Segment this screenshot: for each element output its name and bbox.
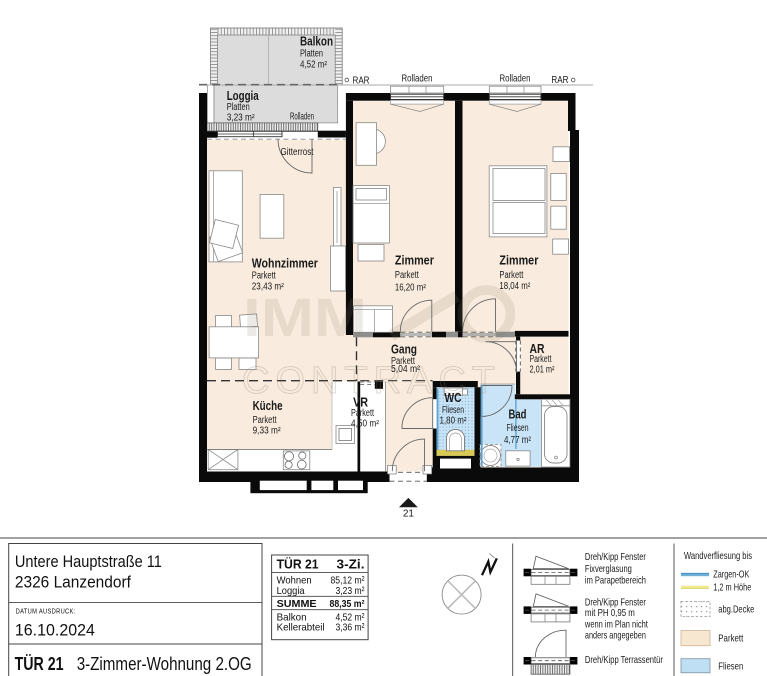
svg-text:Balkon: Balkon xyxy=(300,35,333,49)
svg-text:Parkett: Parkett xyxy=(351,408,374,419)
svg-text:9,33 m²: 9,33 m² xyxy=(253,426,282,437)
svg-text:WC: WC xyxy=(445,391,462,405)
svg-text:abg.Decke: abg.Decke xyxy=(718,603,754,615)
svg-text:Platten: Platten xyxy=(227,102,250,113)
svg-text:Zimmer: Zimmer xyxy=(499,254,538,268)
svg-text:TÜR 21: TÜR 21 xyxy=(277,557,319,572)
svg-text:CONTRACT: CONTRACT xyxy=(242,360,501,402)
svg-text:1,80 m²: 1,80 m² xyxy=(440,416,468,427)
svg-text:3,23 m²: 3,23 m² xyxy=(336,585,365,597)
svg-text:Dreh/Kipp Terrassentür: Dreh/Kipp Terrassentür xyxy=(585,654,663,666)
svg-text:1,2 m Höhe: 1,2 m Höhe xyxy=(713,581,751,593)
svg-text:Parkett: Parkett xyxy=(252,271,276,282)
svg-text:3-Zi.: 3-Zi. xyxy=(337,557,365,572)
svg-text:DATUM AUSDRUCK:: DATUM AUSDRUCK: xyxy=(16,607,76,616)
svg-text:16,20 m²: 16,20 m² xyxy=(395,283,427,294)
svg-text:Zimmer: Zimmer xyxy=(395,254,434,268)
svg-text:Parkett: Parkett xyxy=(499,270,523,281)
svg-text:4,50 m²: 4,50 m² xyxy=(351,419,380,430)
svg-text:Fliesen: Fliesen xyxy=(718,660,743,672)
svg-text:Gang: Gang xyxy=(391,342,417,356)
svg-text:21: 21 xyxy=(403,509,415,520)
svg-text:Rolladen: Rolladen xyxy=(500,74,531,85)
svg-text:Zargen-OK: Zargen-OK xyxy=(713,568,749,580)
svg-text:Dreh/Kipp Fenster: Dreh/Kipp Fenster xyxy=(585,551,646,563)
svg-text:88,35 m²: 88,35 m² xyxy=(330,598,365,610)
svg-text:5,04 m²: 5,04 m² xyxy=(391,364,421,375)
svg-text:Rolladen: Rolladen xyxy=(290,112,314,123)
svg-text:RAR: RAR xyxy=(353,75,370,87)
svg-text:Bad: Bad xyxy=(509,408,527,422)
svg-text:Loggia: Loggia xyxy=(277,585,305,597)
svg-text:mit PH 0,95 m: mit PH 0,95 m xyxy=(585,607,635,619)
svg-text:Fixverglasung: Fixverglasung xyxy=(585,563,632,575)
svg-text:3,36 m²: 3,36 m² xyxy=(336,622,365,634)
svg-text:anders angegeben: anders angegeben xyxy=(585,629,646,641)
svg-text:Fliesen: Fliesen xyxy=(507,423,529,434)
svg-text:Parkett: Parkett xyxy=(530,354,552,365)
svg-text:4,52 m²: 4,52 m² xyxy=(300,60,328,71)
svg-text:Fliesen: Fliesen xyxy=(442,405,464,416)
svg-text:Loggia: Loggia xyxy=(227,88,260,103)
svg-text:18,04 m²: 18,04 m² xyxy=(499,281,531,292)
svg-text:Platten: Platten xyxy=(300,49,323,60)
svg-text:Rolladen: Rolladen xyxy=(402,74,433,85)
svg-text:Wohnzimmer: Wohnzimmer xyxy=(252,257,318,271)
svg-text:Parkett: Parkett xyxy=(395,270,419,281)
svg-text:Untere Hauptstraße 11: Untere Hauptstraße 11 xyxy=(15,552,162,571)
svg-text:Kellerabteil: Kellerabteil xyxy=(277,622,325,634)
svg-text:SUMME: SUMME xyxy=(277,598,317,610)
svg-text:2,01 m²: 2,01 m² xyxy=(530,365,556,376)
svg-text:3-Zimmer-Wohnung 2.OG: 3-Zimmer-Wohnung 2.OG xyxy=(77,654,252,674)
svg-text:23,43 m²: 23,43 m² xyxy=(252,281,285,292)
svg-text:2326 Lanzendorf: 2326 Lanzendorf xyxy=(15,572,131,591)
svg-text:Gitterrost: Gitterrost xyxy=(281,147,314,158)
svg-text:IMM: IMM xyxy=(243,288,367,348)
svg-text:Parkett: Parkett xyxy=(253,415,277,426)
svg-text:im Parapetbereich: im Parapetbereich xyxy=(585,574,646,586)
svg-text:16.10.2024: 16.10.2024 xyxy=(15,621,95,640)
svg-text:RAR: RAR xyxy=(551,74,568,86)
svg-text:Parkett: Parkett xyxy=(718,632,743,644)
svg-text:4,77 m²: 4,77 m² xyxy=(504,435,532,446)
svg-text:Küche: Küche xyxy=(253,399,283,413)
svg-text:3,23 m²: 3,23 m² xyxy=(227,113,256,124)
svg-text:Wandverfliesung bis: Wandverfliesung bis xyxy=(684,550,752,562)
svg-text:TÜR 21: TÜR 21 xyxy=(15,654,64,674)
